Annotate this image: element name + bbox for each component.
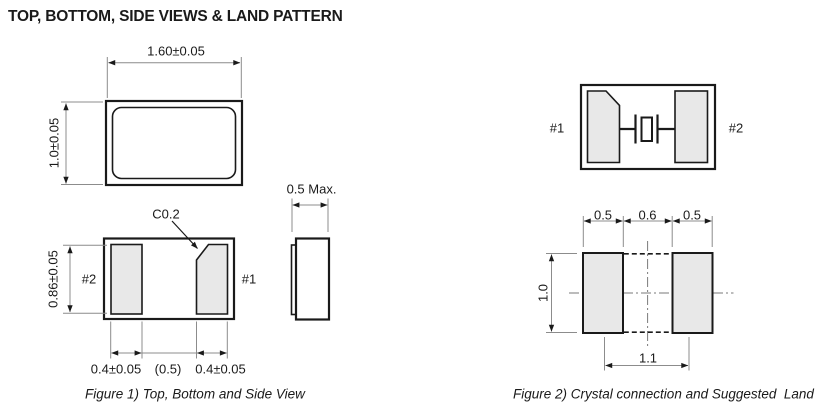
dim-label-body-width: 1.60±0.05 xyxy=(147,45,205,58)
drawing-linework xyxy=(0,0,833,419)
bottom-view-pad-1-chamfered xyxy=(197,245,228,315)
dim-label-body-height: 1.0±0.05 xyxy=(48,118,61,169)
land-pattern-pad-left xyxy=(583,253,623,333)
crystal-connection-pin2-label: #2 xyxy=(729,121,743,134)
bottom-view-pad1-label: #1 xyxy=(242,272,256,285)
figure2-caption: Figure 2) Crystal connection and Suggest… xyxy=(513,387,814,402)
crystal-connection-pin1-label: #1 xyxy=(550,121,564,134)
dim-label-land-left-width: 0.5 xyxy=(594,208,612,221)
dim-label-pad-gap: (0.5) xyxy=(155,362,182,375)
extension-lines-height xyxy=(61,102,103,185)
bottom-view-pad-2 xyxy=(111,245,142,315)
top-view xyxy=(61,57,242,185)
dim-label-land-height: 1.0 xyxy=(536,283,549,301)
dim-label-land-pitch: 1.1 xyxy=(639,351,657,364)
crystal-connection-view xyxy=(581,85,715,169)
side-view-body-outline xyxy=(296,239,329,320)
crystal-symbol-box xyxy=(642,118,653,142)
bottom-view xyxy=(63,221,234,359)
dim-label-thickness: 0.5 Max. xyxy=(287,183,337,196)
bottom-view-pad2-label: #2 xyxy=(82,273,96,286)
chamfer-label: C0.2 xyxy=(152,208,179,221)
figure1-caption: Figure 1) Top, Bottom and Side View xyxy=(85,387,305,402)
dim-label-land-gap: 0.6 xyxy=(638,208,656,221)
side-view xyxy=(292,199,330,320)
dim-label-pad-height: 0.86±0.05 xyxy=(46,250,59,308)
land-pattern-pad-right xyxy=(673,253,713,333)
crystal-connection-pad-2 xyxy=(675,91,708,163)
dim-label-pad2-width: 0.4±0.05 xyxy=(91,362,142,375)
extension-lines-thickness xyxy=(292,199,328,233)
datasheet-drawing-canvas: TOP, BOTTOM, SIDE VIEWS & LAND PATTERN xyxy=(0,0,833,419)
land-pattern-view xyxy=(546,216,734,371)
dim-label-pad1-width: 0.4±0.05 xyxy=(195,362,246,375)
crystal-connection-pad-1-chamfered xyxy=(588,91,620,163)
top-view-lid-outline xyxy=(113,108,236,179)
dim-label-land-right-width: 0.5 xyxy=(683,208,701,221)
